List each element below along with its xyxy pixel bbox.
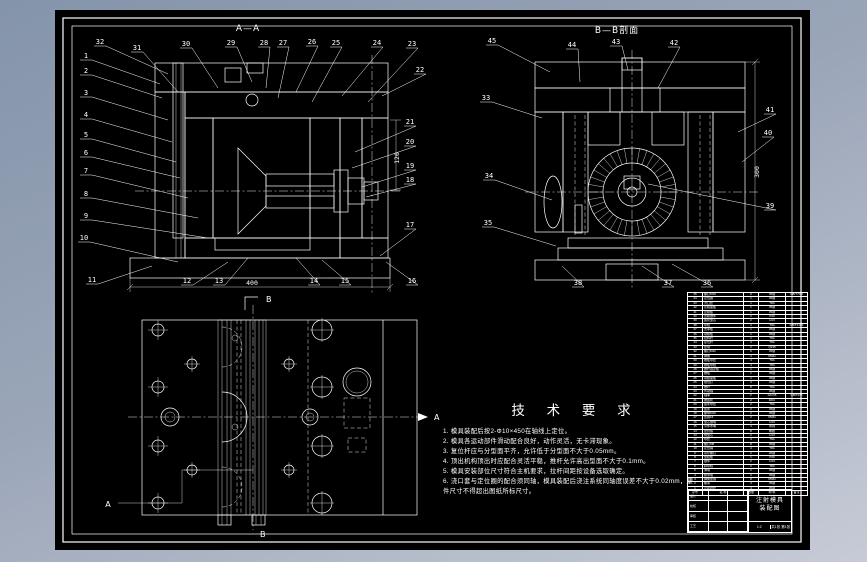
callout-label-45: 45 (488, 37, 496, 45)
callout-label-26: 26 (308, 38, 316, 46)
title-block-row: 工艺 (689, 521, 748, 531)
callout-label-11: 11 (88, 276, 96, 284)
title-block-row: 设计 (689, 491, 748, 501)
callout-label-44: 44 (568, 41, 576, 49)
callout-label-23: 23 (408, 40, 416, 48)
callout-label-24: 24 (373, 39, 381, 47)
callout-label-34: 34 (485, 172, 493, 180)
callout-label-8: 8 (84, 190, 88, 198)
drawing-title: 注射模具 装配图 (749, 490, 791, 522)
technical-requirements: 技 术 要 求 1. 模具装配后按2-Φ10×450在轴线上定位。2. 模具各运… (443, 399, 698, 497)
title-block-row: 审核 (689, 511, 748, 521)
callout-label-17: 17 (406, 221, 414, 229)
tech-requirement-item: 4. 顶出机构顶出时应配合灵活平稳，推杆允许高出型面不大于0.1mm。 (443, 457, 698, 467)
callout-label-29: 29 (227, 39, 235, 47)
view-bb-title: B—B剖面 (595, 24, 639, 36)
tech-requirements-title: 技 术 要 求 (453, 399, 698, 419)
drawing-sheets: 共1张 第1张 (771, 525, 792, 530)
callout-label-42: 42 (670, 39, 678, 47)
callout-label-18: 18 (406, 176, 414, 184)
view-aa-title: A—A (236, 24, 260, 34)
section-marker-a-right: A (434, 413, 440, 422)
callout-label-3: 3 (84, 89, 88, 97)
callout-label-43: 43 (612, 38, 620, 46)
callout-label-37: 37 (664, 279, 672, 287)
title-block: 设计校核审核工艺 注射模具 装配图 1:2 共1张 第1张 (687, 489, 792, 533)
callout-label-15: 15 (341, 277, 349, 285)
callout-label-31: 31 (133, 44, 141, 52)
callout-label-5: 5 (84, 131, 88, 139)
callout-label-2: 2 (84, 67, 88, 75)
callout-label-40: 40 (764, 129, 772, 137)
callout-label-7: 7 (84, 167, 88, 175)
callout-label-36: 36 (703, 279, 711, 287)
callout-label-33: 33 (482, 94, 490, 102)
callout-label-21: 21 (406, 118, 414, 126)
dim-300: 300 (753, 166, 761, 178)
callout-label-16: 16 (408, 277, 416, 285)
callout-label-9: 9 (84, 212, 88, 220)
callout-label-30: 30 (182, 40, 190, 48)
drawing-scale: 1:2 (749, 525, 771, 529)
tech-requirement-item: 1. 模具装配后按2-Φ10×450在轴线上定位。 (443, 427, 698, 437)
callout-label-28: 28 (260, 39, 268, 47)
callout-label-1: 1 (84, 52, 88, 60)
callout-label-4: 4 (84, 111, 88, 119)
dim-400: 400 (246, 279, 258, 287)
callout-label-35: 35 (484, 219, 492, 227)
section-marker-b-top: B (266, 295, 272, 304)
callout-label-20: 20 (406, 138, 414, 146)
tech-requirement-item: 6. 浇口套与定位圈的配合须同轴，模具装配后浇注系统同轴度误差不大于0.02mm… (443, 477, 698, 497)
callout-label-25: 25 (332, 39, 340, 47)
title-block-row: 校核 (689, 501, 748, 511)
section-marker-b-bottom: B (260, 530, 266, 539)
callout-label-41: 41 (766, 106, 774, 114)
title-block-grid: 设计校核审核工艺 (688, 490, 748, 532)
tech-requirement-item: 3. 复位杆应与分型面平齐，允许低于分型面不大于0.05mm。 (443, 447, 698, 457)
section-marker-a-left: A (105, 500, 111, 509)
parts-list: 45螺钉M10645钢GB/T70.144定位圈145钢43浇口套1T8A42定… (687, 292, 792, 496)
cad-viewer-background: A—A 400 (0, 0, 867, 562)
callout-label-22: 22 (416, 66, 424, 74)
callout-label-6: 6 (84, 149, 88, 157)
tech-requirement-item: 5. 模具安装部位尺寸符合主机要求，拉杆间距按设备选取确定。 (443, 467, 698, 477)
callout-label-32: 32 (96, 38, 104, 46)
callout-label-12: 12 (183, 277, 191, 285)
parts-list-table: 45螺钉M10645钢GB/T70.144定位圈145钢43浇口套1T8A42定… (687, 292, 808, 496)
callout-label-13: 13 (215, 277, 223, 285)
title-block-right: 注射模具 装配图 1:2 共1张 第1张 (748, 490, 791, 532)
drawing-title-line2: 装配图 (759, 506, 780, 513)
callout-label-39: 39 (766, 202, 774, 210)
tech-requirements-list: 1. 模具装配后按2-Φ10×450在轴线上定位。2. 模具各运动部件滑动配合良… (443, 427, 698, 497)
callout-label-27: 27 (279, 39, 287, 47)
callout-label-14: 14 (310, 277, 318, 285)
title-block-meta: 1:2 共1张 第1张 (749, 522, 791, 532)
callout-label-19: 19 (406, 162, 414, 170)
callout-label-38: 38 (574, 279, 582, 287)
callout-label-10: 10 (80, 234, 88, 242)
drawing-title-line1: 注射模具 (756, 498, 784, 505)
dim-120: 120 (393, 152, 401, 164)
tech-requirement-item: 2. 模具各运动部件滑动配合良好，动作灵活，无卡滞现象。 (443, 437, 698, 447)
